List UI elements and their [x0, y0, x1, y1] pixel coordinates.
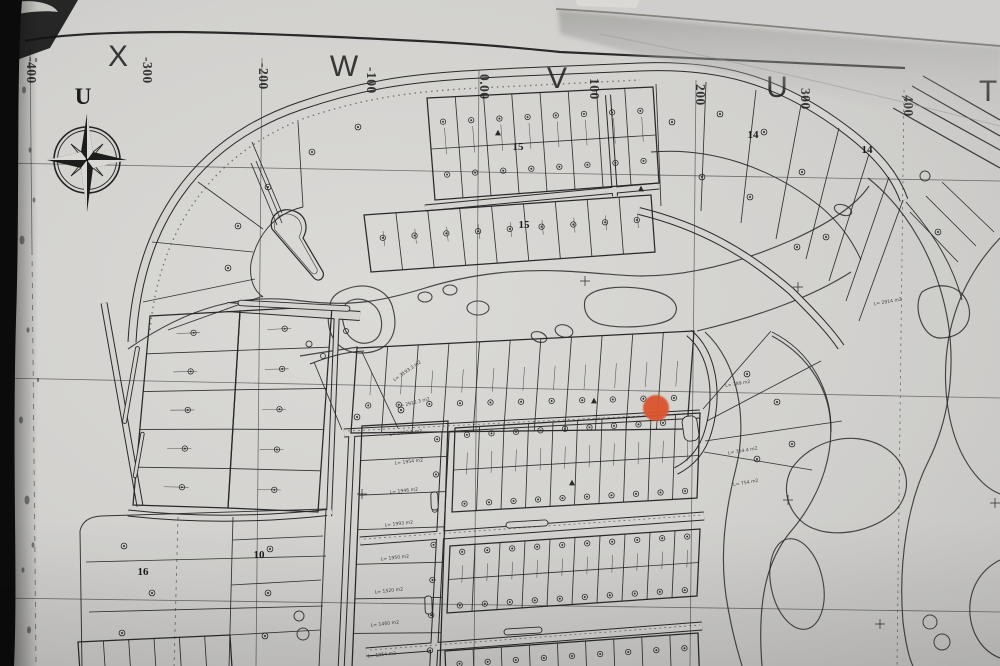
- paper-grain: [0, 0, 1000, 666]
- photo-of-plat-map: -400X-300-200W-1000.00V100200U300400T151…: [0, 0, 1000, 666]
- photo-artifacts: [0, 0, 1000, 666]
- plat-map: -400X-300-200W-1000.00V100200U300400T151…: [0, 0, 1000, 666]
